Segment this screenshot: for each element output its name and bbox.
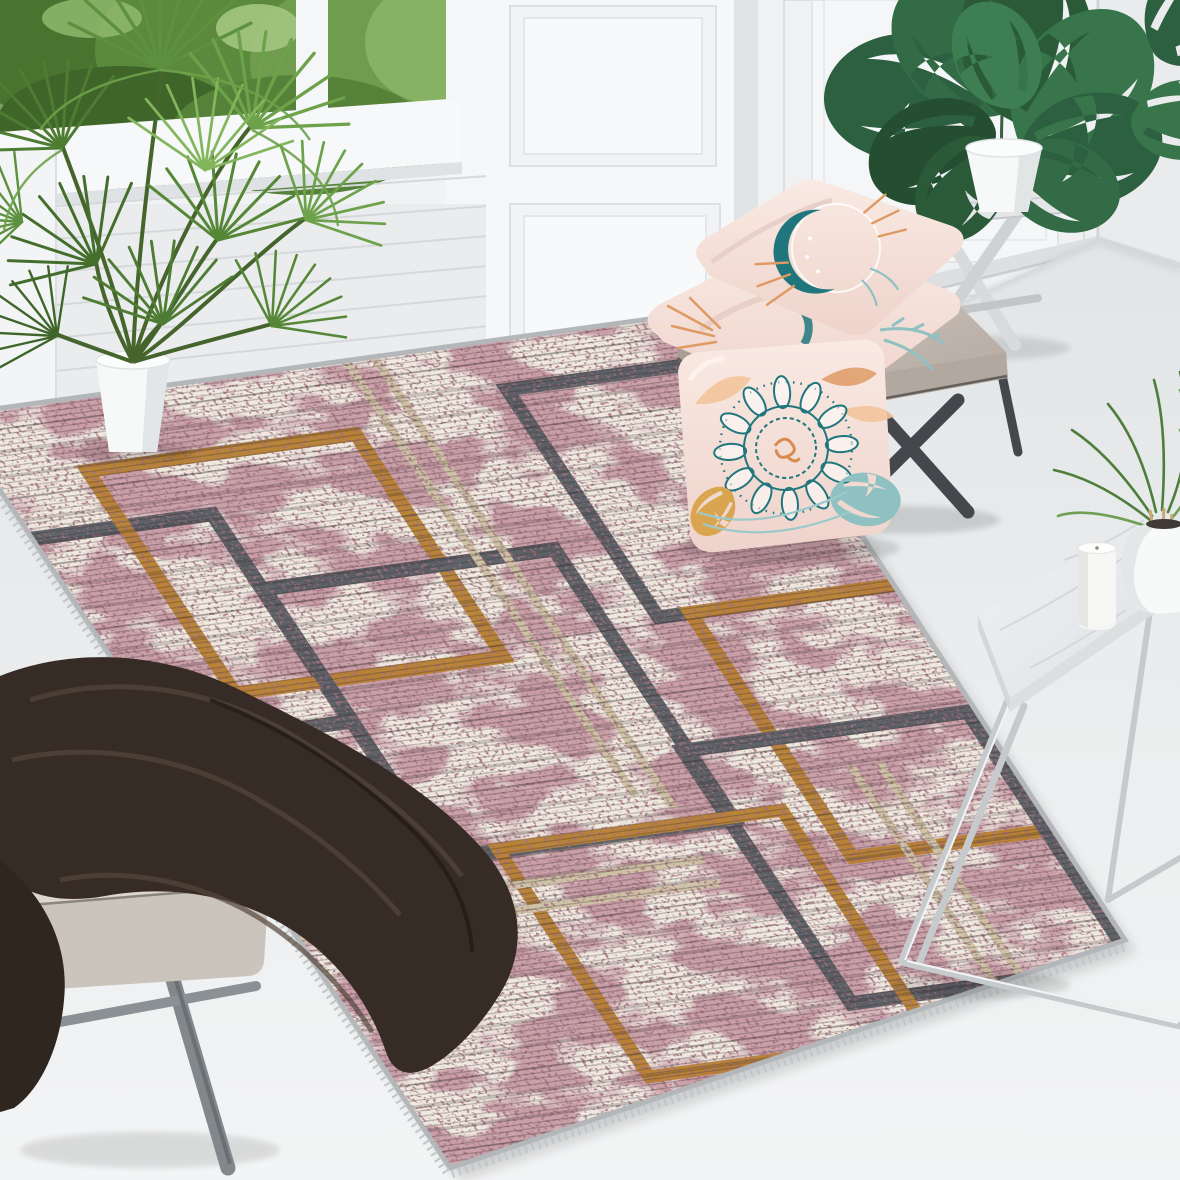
palm-pot	[96, 351, 170, 452]
candle-wick	[1095, 546, 1099, 550]
window-left-trim	[0, 150, 56, 438]
candle	[1078, 543, 1116, 631]
interior-scene	[0, 0, 1180, 1180]
photo-canvas	[0, 0, 1180, 1180]
mandala-pillow	[671, 340, 912, 564]
